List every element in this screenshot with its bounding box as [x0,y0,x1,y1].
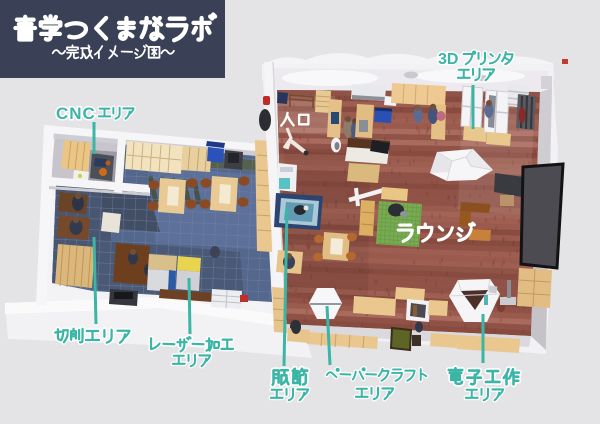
svg-text:CNC: CNC [56,104,96,123]
svg-text:3D: 3D [438,51,458,68]
